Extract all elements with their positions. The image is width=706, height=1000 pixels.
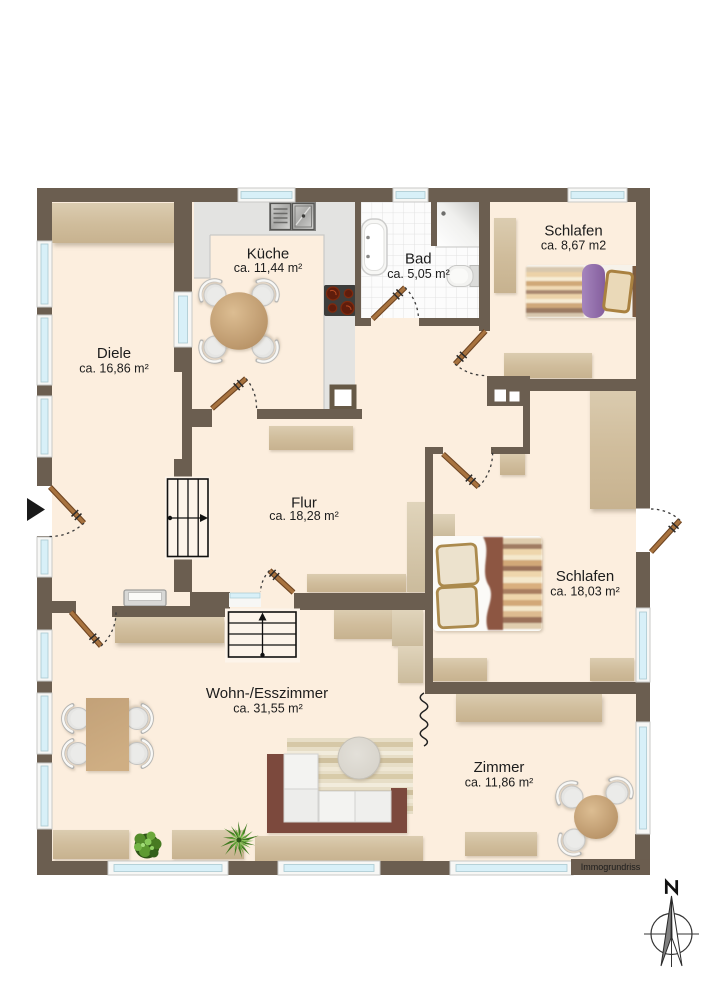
svg-text:Schlafen: Schlafen — [556, 568, 614, 585]
svg-text:ca. 18,03 m²: ca. 18,03 m² — [550, 585, 619, 599]
svg-text:Bad: Bad — [405, 251, 432, 268]
svg-text:Küche: Küche — [247, 246, 290, 263]
svg-text:ca. 31,55 m²: ca. 31,55 m² — [233, 702, 302, 716]
svg-text:ca. 8,67 m2: ca. 8,67 m2 — [541, 239, 606, 253]
svg-text:ca. 16,86 m²: ca. 16,86 m² — [79, 362, 148, 376]
svg-text:ca. 11,44 m²: ca. 11,44 m² — [234, 261, 303, 275]
svg-text:Zimmer: Zimmer — [474, 759, 525, 776]
svg-text:Immogrundriss: Immogrundriss — [581, 862, 641, 872]
svg-text:Diele: Diele — [97, 345, 131, 362]
svg-text:ca. 5,05 m²: ca. 5,05 m² — [387, 267, 450, 281]
svg-text:Schlafen: Schlafen — [544, 223, 602, 240]
svg-text:ca. 11,86 m²: ca. 11,86 m² — [465, 776, 534, 790]
svg-text:ca. 18,28 m²: ca. 18,28 m² — [269, 509, 338, 523]
svg-text:Wohn-/Esszimmer: Wohn-/Esszimmer — [206, 685, 328, 702]
